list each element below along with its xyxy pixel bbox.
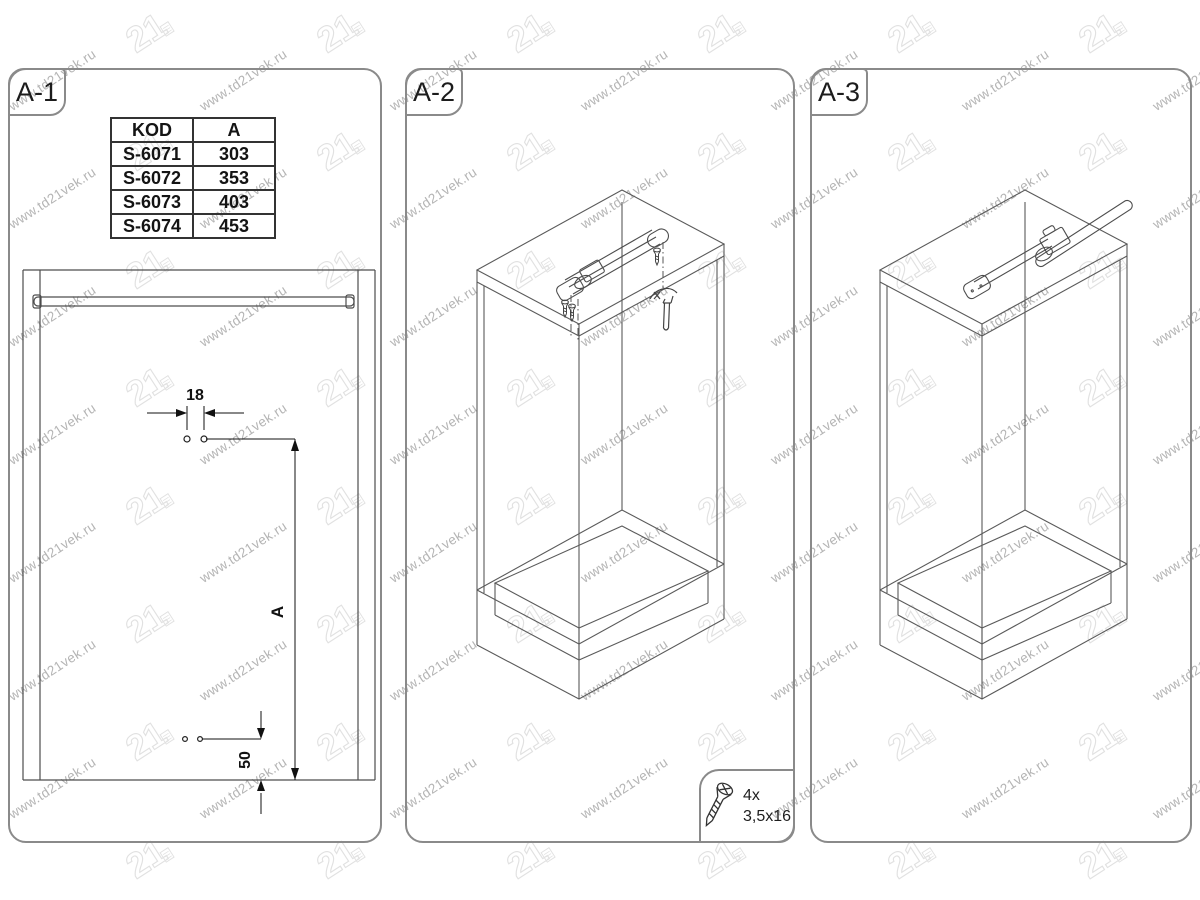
- isometric-extended-drawing: [812, 70, 1190, 841]
- screw-icon: [701, 775, 741, 837]
- table-cell: 403: [193, 190, 275, 214]
- instruction-sheet: www.td21vek.ruwww.td21vek.ruwww.td21vek.…: [0, 0, 1200, 900]
- table-cell: 353: [193, 166, 275, 190]
- cabinet-front-view: [23, 270, 375, 780]
- watermark-logo-icon: [884, 2, 940, 58]
- panel-a1: A-1 KODAS-6071303S-6072353S-6073403S-607…: [8, 68, 382, 843]
- dimension-bottom-offset: 50: [202, 711, 265, 814]
- panel-a3: A-3: [810, 68, 1192, 843]
- table-row: S-6072353: [111, 166, 275, 190]
- table-cell: S-6071: [111, 142, 193, 166]
- table-cell: S-6074: [111, 214, 193, 238]
- watermark-logo-icon: [694, 2, 750, 58]
- alignment-lines: [571, 242, 663, 342]
- table-cell: 303: [193, 142, 275, 166]
- watermark-logo-icon: [122, 2, 178, 58]
- table-header-cell: A: [193, 118, 275, 142]
- watermark-logo-icon: [1075, 2, 1131, 58]
- screw-count: 4x: [743, 785, 791, 806]
- table-header-row: KODA: [111, 118, 275, 142]
- table-cell: 453: [193, 214, 275, 238]
- dim-50-label: 50: [237, 751, 254, 769]
- dimension-hole-spacing: 18: [147, 387, 244, 430]
- table-row: S-6071303: [111, 142, 275, 166]
- table-cell: S-6073: [111, 190, 193, 214]
- watermark-logo-icon: [503, 2, 559, 58]
- dimension-height-a: A: [206, 439, 299, 780]
- hanging-rail-assembly: [555, 226, 671, 302]
- panel-a2: A-2: [405, 68, 795, 843]
- screw-size: 3,5x16: [743, 806, 791, 827]
- drill-holes: [183, 436, 207, 741]
- table-cell: S-6072: [111, 166, 193, 190]
- table-header-cell: KOD: [111, 118, 193, 142]
- hanging-rail-front: [33, 295, 354, 308]
- extended-rail-assembly: [962, 200, 1132, 300]
- screw-icon: [562, 300, 569, 317]
- watermark-logo-icon: [313, 2, 369, 58]
- dim-a-label: A: [268, 606, 287, 618]
- cabinet-wireframe: [477, 190, 724, 699]
- screw-icon: [654, 248, 661, 265]
- size-table: KODAS-6071303S-6072353S-6073403S-6074453: [110, 117, 276, 239]
- screw-callout: 4x 3,5x16: [699, 769, 795, 843]
- table-row: S-6074453: [111, 214, 275, 238]
- table-row: S-6073403: [111, 190, 275, 214]
- isometric-assembly-drawing: [407, 70, 793, 841]
- dim-18-label: 18: [186, 387, 204, 404]
- cabinet-wireframe: [880, 190, 1127, 699]
